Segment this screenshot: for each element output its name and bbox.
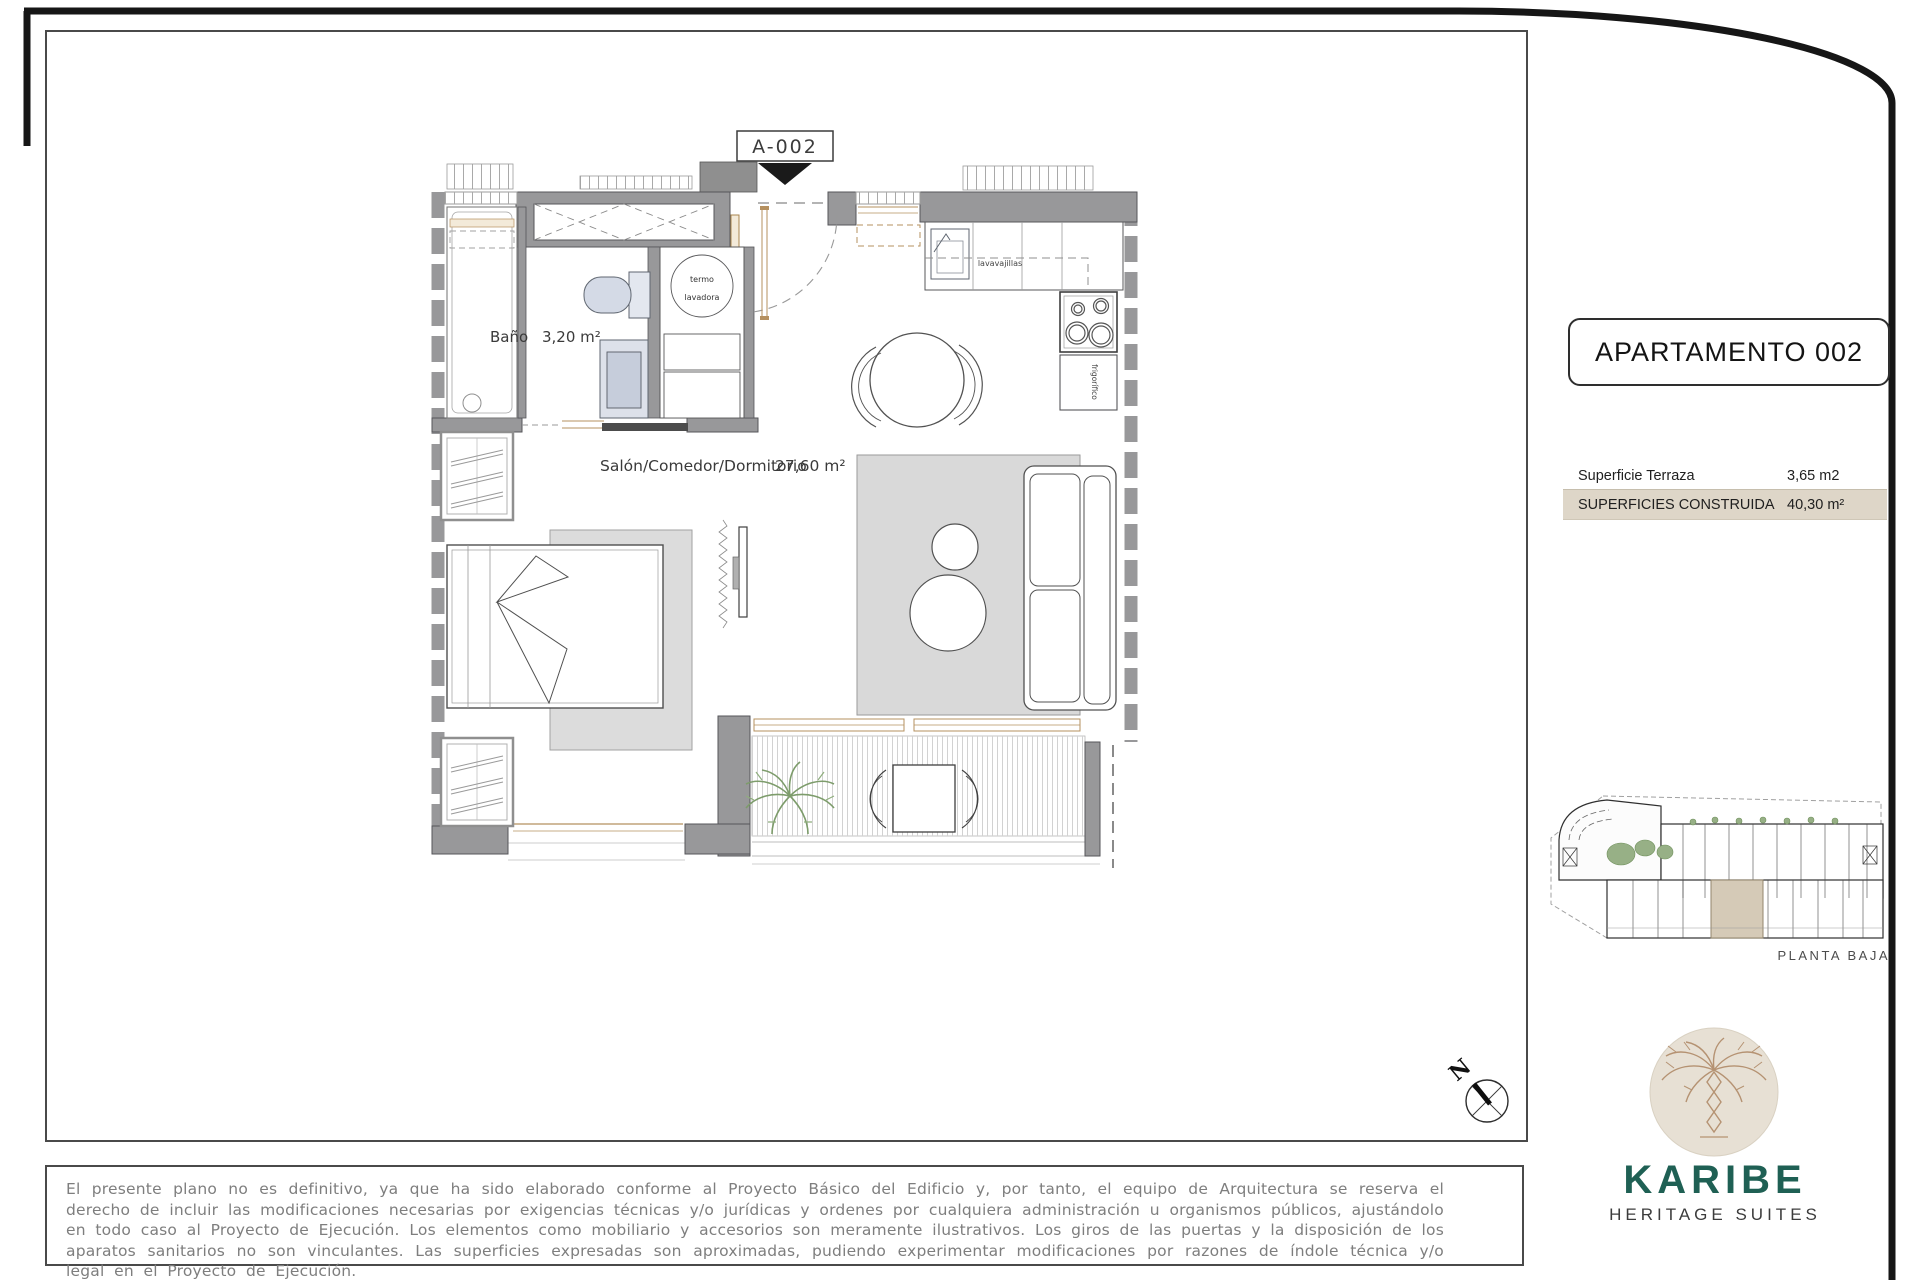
toilet-tank	[629, 272, 650, 318]
surface-value: 40,30 m²	[1787, 497, 1887, 513]
shower-tray	[447, 207, 517, 418]
window-louvre-top	[441, 432, 513, 520]
window-louvre-bottom	[441, 738, 513, 826]
drain	[463, 394, 481, 412]
terrace-table	[893, 765, 955, 832]
north-label: N	[1444, 1054, 1476, 1087]
site-plan-caption: PLANTA BAJA	[1740, 948, 1890, 963]
sliding-door	[602, 423, 688, 431]
toilet-bowl	[584, 277, 631, 313]
coffee-table	[910, 575, 986, 651]
surfaces-table: Superficie Terraza 3,65 m2 SUPERFICIES C…	[1563, 462, 1887, 520]
side-table	[932, 524, 978, 570]
site-plan	[1543, 788, 1891, 960]
unit-callout-label: A-002	[752, 136, 818, 158]
highlighted-unit	[1711, 880, 1763, 938]
fridge	[1060, 355, 1117, 410]
dining-set	[852, 333, 983, 427]
north-compass: N	[1440, 1040, 1530, 1130]
living-area: 27,60 m²	[775, 457, 846, 475]
duct	[534, 204, 714, 240]
callout-pointer	[758, 163, 812, 185]
frigorifico-label: frigorífico	[1090, 364, 1099, 400]
surface-value: 3,65 m2	[1787, 468, 1887, 484]
apartment-title-box: APARTAMENTO 002	[1568, 318, 1890, 386]
table-row-highlighted: SUPERFICIES CONSTRUIDA 40,30 m²	[1563, 489, 1887, 520]
surface-label: Superficie Terraza	[1578, 468, 1787, 484]
bath-area: 3,20 m²	[542, 328, 601, 346]
disclaimer-box: El presente plano no es definitivo, ya q…	[45, 1165, 1524, 1266]
floor-plan: A-002	[370, 105, 1150, 875]
bath-name: Baño	[490, 328, 528, 346]
brand-tagline: HERITAGE SUITES	[1589, 1205, 1841, 1225]
apartment-title: APARTAMENTO 002	[1595, 337, 1863, 368]
brand-logo-icon	[1646, 1024, 1782, 1160]
table-row: Superficie Terraza 3,65 m2	[1563, 462, 1887, 489]
lavavajillas-label: lavavajillas	[978, 259, 1022, 268]
floorplan-sheet: { "plan": { "callout": "A-002", "bath": …	[0, 0, 1920, 1280]
tv-wall-squiggle	[719, 520, 727, 628]
brand-name: KARIBE	[1589, 1158, 1841, 1203]
window-bath	[445, 192, 517, 204]
window-kitchen	[856, 192, 920, 213]
utility-closet: termo lavadora	[660, 247, 744, 418]
lavadora-label: lavadora	[685, 293, 720, 302]
surface-label: SUPERFICIES CONSTRUIDA	[1578, 497, 1787, 513]
tv	[739, 527, 747, 617]
disclaimer-text: El presente plano no es definitivo, ya q…	[47, 1167, 1522, 1282]
dining-table	[870, 333, 964, 427]
bed	[447, 545, 663, 708]
termo-label: termo	[690, 275, 714, 284]
